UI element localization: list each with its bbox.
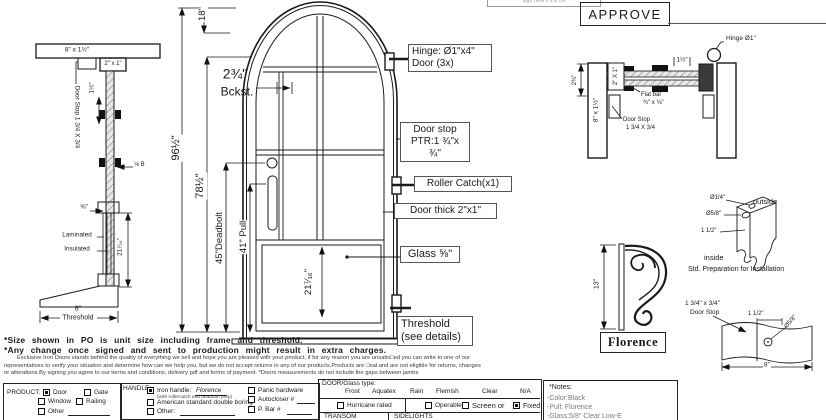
option-handle-other[interactable]: Other: <box>157 409 175 416</box>
flat-bar-callout: ⅛ B <box>134 162 145 168</box>
plan-door-stop-label: Door Stop <box>623 117 650 123</box>
plan-door-profile: 2" X 1" <box>613 67 619 85</box>
glass-type-frost[interactable]: Frost <box>345 389 360 396</box>
option-hurricane[interactable]: Hurricane rated <box>347 403 392 410</box>
option-screen[interactable]: Screen or <box>472 402 505 410</box>
jamb-profile-size: 2" x 1" <box>104 61 121 67</box>
pull-height-dim: 41" Pull <box>239 220 249 254</box>
fine-print-3: or alterations.By signing you agree to o… <box>4 370 418 376</box>
backset-dim: 2¾" <box>223 67 247 82</box>
prep-spacing-dim: 1 1/2" <box>701 228 716 234</box>
plan-jamb-depth-dim: 2¾" <box>572 75 578 85</box>
insulated-label: Insulated <box>64 247 90 254</box>
callout-threshold: Threshold (see details) <box>397 316 473 346</box>
option-gate[interactable]: Gate <box>94 390 108 397</box>
glass-thickness-dim: ⅝" <box>80 205 88 212</box>
product-other-blank[interactable] <box>68 415 110 416</box>
p-bar-blank[interactable] <box>287 414 312 415</box>
plan-jamb-size: 8" x 1½" <box>594 98 601 122</box>
clip-spacing-dim: 1½" <box>90 82 97 93</box>
panel-height-dim: 21⁷⁄₁₆" <box>304 268 314 296</box>
checkbox-fixed[interactable] <box>513 402 520 409</box>
deadbolt-height-dim: 45"Deadbolt <box>215 211 225 265</box>
glass-type-flemish[interactable]: Flemish <box>436 389 459 396</box>
option-operable[interactable]: Operable <box>435 403 462 410</box>
approve-signature-line <box>668 23 826 24</box>
plan-gap-dim: 1½" <box>676 58 687 65</box>
footnote-change: *Any change once signed and sent to prod… <box>4 346 386 355</box>
prep-hole-small-dim: Ø1/4" <box>710 195 725 201</box>
option-window[interactable]: Window <box>48 399 71 406</box>
checkbox-screen[interactable] <box>462 402 469 409</box>
frame-height-dim: 78½" <box>195 172 207 199</box>
plan-flat-bar-size: ¾" x ⅛" <box>643 100 664 106</box>
plan-flat-bar-label: Flat bar <box>641 92 661 98</box>
approve-button[interactable]: APPROVE <box>580 2 670 26</box>
note-color: -Color:Black <box>547 395 585 402</box>
prep-inside-label: inside <box>704 254 724 262</box>
option-railing[interactable]: Railing <box>86 399 106 406</box>
glass-height-dim: 21⁷⁄₁₆" <box>118 238 125 256</box>
callout-hinge: Hinge: Ø1"x4" Door (3x) <box>408 44 492 72</box>
arch-rise-dim: 18" <box>198 6 208 22</box>
jamb-frame-size: 8" x 1½" <box>65 48 89 55</box>
plan-hinge-label: Hinge Ø1" <box>726 36 756 43</box>
stop-detail-width-dim: 8" <box>763 363 771 370</box>
checkbox-gate[interactable] <box>84 389 91 396</box>
fine-print-1: Exclusive Iron Doors stands behind the q… <box>17 355 470 361</box>
jamb-door-stop-label: Door Stop 1 3/4 X 3/4 <box>73 86 80 149</box>
checkbox-autocloser[interactable] <box>248 396 255 403</box>
notes-title: *Notes: <box>549 384 572 391</box>
footnote-size: *Size shown in PO is unit size including… <box>4 336 303 345</box>
pull-height-detail-dim: 13" <box>593 279 600 289</box>
checkbox-american-boring[interactable] <box>147 399 154 406</box>
option-p-bar[interactable]: P. Bar # <box>258 407 281 414</box>
option-panic-hardware[interactable]: Panic hardware <box>258 388 303 395</box>
checkbox-handle-other[interactable] <box>147 408 154 415</box>
laminated-label: Laminated <box>62 233 91 240</box>
checkbox-railing[interactable] <box>76 398 83 405</box>
prep-caption: Std. Preparation for Installation <box>688 266 784 273</box>
prep-hole-large-dim: Ø5/8" <box>706 211 721 217</box>
glass-col-divider-1 <box>405 398 406 412</box>
option-fixed[interactable]: Fixed <box>523 403 540 410</box>
fine-print-2: representatives to verify your situation… <box>4 363 481 369</box>
prep-outside-label: outside <box>753 198 777 206</box>
checkbox-iron-handle[interactable] <box>147 387 154 394</box>
stop-detail-offset-dim: 1 1/2" <box>748 311 763 317</box>
stop-detail-size: 1 3/4" x 3/4" <box>685 301 720 308</box>
note-pull: -Pull: Florence <box>547 404 592 411</box>
glass-type-label: DOOR/Glass type: <box>322 381 376 388</box>
iron-door-shop-drawing: Sign Here if it is OK APPROVE 8" x 1½" 2… <box>0 0 826 420</box>
autocloser-blank[interactable] <box>297 403 315 404</box>
glass-type-clear[interactable]: Clear <box>482 389 498 396</box>
checkbox-window[interactable] <box>38 398 45 405</box>
glass-type-rain[interactable]: Rain <box>410 389 423 396</box>
checkbox-product-other[interactable] <box>38 408 45 415</box>
handle-other-blank[interactable] <box>180 415 235 416</box>
transom-label: TRANSOM <box>324 414 357 420</box>
checkbox-door[interactable] <box>43 389 50 396</box>
option-door[interactable]: Door <box>53 390 67 397</box>
glass-col-divider-2 <box>388 412 389 420</box>
option-american-boring[interactable]: American standard double boring <box>157 400 253 407</box>
checkbox-panic-hardware[interactable] <box>248 387 255 394</box>
option-autocloser[interactable]: Autocloser # <box>258 397 294 404</box>
pull-name-box: Florence <box>600 332 666 353</box>
plan-door-stop-size: 1 3/4 X 3/4 <box>626 125 655 131</box>
callout-roller-catch: Roller Catch(x1) <box>414 176 512 192</box>
checkbox-p-bar[interactable] <box>248 406 255 413</box>
option-iron-handle[interactable]: Iron handle: <box>157 388 191 395</box>
glass-type-aquatex[interactable]: Aquatex <box>372 389 396 396</box>
sidelights-label: SIDELIGHTS <box>394 414 433 420</box>
total-height-dim: 96½" <box>171 134 183 161</box>
callout-door-thick: Door thick 2"x1" <box>394 203 497 219</box>
checkbox-hurricane[interactable] <box>337 402 344 409</box>
option-product-other[interactable]: Other <box>48 409 64 416</box>
callout-glass: Glass ⅝" <box>400 246 460 263</box>
glass-type-na[interactable]: N/A <box>520 389 531 396</box>
callout-door-stop: Door stop PTR:1 ¾"x ¾" <box>400 122 470 162</box>
product-label: PRODUCT: <box>7 390 40 397</box>
note-glass: -Glass:5/8" Clear Low-E <box>547 413 622 420</box>
backset-label: Bckst. <box>221 86 254 99</box>
threshold-label: Threshold <box>62 314 93 321</box>
threshold-width-dim: 8" <box>75 305 81 312</box>
stop-detail-label: Door Stop <box>690 310 719 317</box>
checkbox-operable[interactable] <box>425 402 432 409</box>
glass-row-divider-1 <box>318 398 540 399</box>
